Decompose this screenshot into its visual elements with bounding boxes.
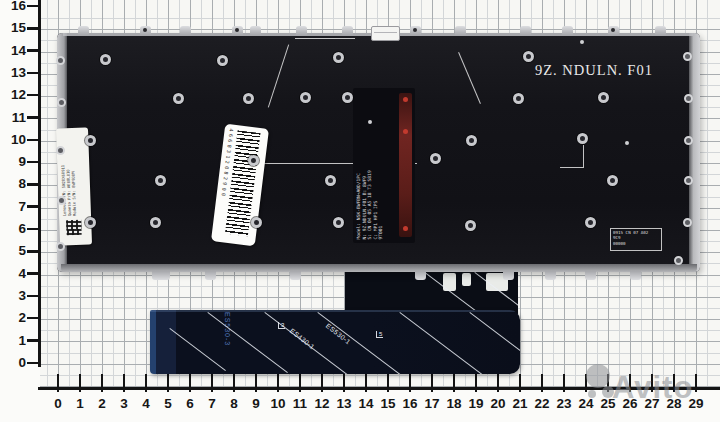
ruler-tick (27, 49, 41, 52)
screw-hole (85, 135, 96, 146)
ruler-tick (167, 374, 169, 392)
solder-pad (403, 226, 408, 231)
ruler-number: 14 (355, 396, 377, 411)
screw-hole (251, 217, 262, 228)
mounting-tab-with-hole (140, 26, 151, 35)
ruler-number: 3 (113, 396, 135, 411)
ruler-number: 15 (0, 20, 26, 35)
ruler-number: 0 (47, 396, 69, 411)
fold-line (169, 328, 226, 371)
ruler-tick (519, 374, 521, 392)
screw-hole (333, 52, 344, 63)
watermark-text: Avito (612, 370, 693, 406)
ruler-tick (387, 374, 389, 392)
ruler-tick (27, 161, 41, 164)
copper-backlight-strip (399, 93, 412, 237)
ruler-number: 0 (0, 355, 26, 370)
ruler-number: 10 (0, 132, 26, 147)
screw-hole (465, 220, 476, 231)
ruler-number: 11 (289, 396, 311, 411)
ruler-number: 6 (179, 396, 201, 411)
flex-printed-label: Model: NSK-BWFBN+A0D/1PC N: 9Z.NDULN.F01… (356, 95, 390, 240)
ruler-number: 19 (465, 396, 487, 411)
watermark-logo-circle (588, 390, 596, 398)
ruler-tick (211, 374, 213, 392)
screw-hole (333, 217, 344, 228)
ruler-tick (299, 374, 301, 392)
screw-hole (150, 217, 161, 228)
mounting-tab (455, 26, 466, 35)
mounting-tab (545, 271, 556, 280)
ruler-tick (27, 317, 41, 320)
ruler-tick (79, 374, 81, 392)
solder-pad (403, 97, 408, 102)
ruler-tick (343, 374, 345, 392)
ruler-number: 8 (223, 396, 245, 411)
rivet (56, 146, 65, 155)
ruler-tick (27, 72, 41, 75)
ruler-number: 9 (245, 396, 267, 411)
screw-hole (217, 55, 228, 66)
mounting-tab (205, 271, 216, 280)
flex-connector (371, 26, 400, 41)
mounting-tab (415, 271, 426, 280)
ribbon-fold-mark: 5 (376, 331, 383, 338)
mounting-tab (585, 271, 596, 280)
fold-line (317, 312, 401, 374)
barcode-sticker: 4668312082900 (211, 124, 269, 246)
ruler-tick (27, 183, 41, 186)
ruler-tick (321, 374, 323, 392)
ruler-tick (365, 374, 367, 392)
ruler-tick (27, 250, 41, 253)
screw-hole (325, 175, 336, 186)
flex-label-line: 9T001 (378, 95, 384, 240)
rivet (683, 52, 692, 61)
small-hole (625, 141, 629, 145)
watermark-logo-circle (586, 364, 610, 388)
screw-hole (342, 92, 353, 103)
ruler-number: 4 (0, 266, 26, 281)
ruler-number: 2 (0, 310, 26, 325)
etch-line (583, 145, 584, 167)
screw-hole (100, 54, 111, 65)
ruler-number: 10 (267, 396, 289, 411)
date-code-label: 0915 CN 07 A02 9C9 00000 (610, 228, 662, 251)
ruler-tick (123, 374, 125, 392)
ruler-tick (27, 272, 41, 275)
ruler-tick (475, 374, 477, 392)
ruler-tick (27, 205, 41, 208)
ruler-tick (145, 374, 147, 392)
ruler-tick (255, 374, 257, 392)
ribbon-cable-neck (345, 270, 518, 314)
mounting-tab (520, 26, 531, 35)
qr-code (66, 220, 82, 236)
cable-cutout (462, 273, 471, 286)
ruler-tick (101, 374, 103, 392)
ruler-number: 23 (553, 396, 575, 411)
solder-pad (403, 129, 408, 134)
etch-line (458, 52, 481, 104)
ruler-number: 8 (0, 176, 26, 191)
rivet (684, 136, 693, 145)
ruler-number: 5 (0, 243, 26, 258)
mounting-tab-with-hole (608, 26, 619, 35)
ruler-number: 13 (333, 396, 355, 411)
screw-hole (577, 133, 588, 144)
ruler-tick (541, 374, 543, 392)
ruler-number: 1 (0, 333, 26, 348)
rivet (57, 196, 66, 205)
mounting-tab (342, 26, 353, 35)
ruler-number: 21 (509, 396, 531, 411)
ruler-number: 16 (399, 396, 421, 411)
ruler-tick (409, 374, 411, 392)
ruler-number: 12 (0, 87, 26, 102)
fold-line (469, 312, 520, 374)
rivet (684, 176, 693, 185)
screw-hole (243, 93, 254, 104)
screw-hole (513, 93, 524, 104)
ruler-number: 7 (201, 396, 223, 411)
rivet (56, 242, 65, 251)
ruler-tick (189, 374, 191, 392)
ruler-number: 15 (377, 396, 399, 411)
keyboard-backplate: 9Z. NDULN. F01 Model: NSK-BWFBN+A0D/1PC … (57, 33, 700, 272)
mounting-tab (562, 26, 573, 35)
ruler-number: 17 (421, 396, 443, 411)
etch-line (560, 167, 584, 168)
ruler-tick (563, 374, 565, 392)
rivet (56, 56, 65, 65)
ruler-tick (27, 5, 41, 8)
label-line: 00000 (613, 241, 659, 246)
screw-hole (466, 135, 477, 146)
ruler-tick (57, 374, 59, 392)
ribbon-cable: ES530-3 ES430-1 ES530-1 3 5 (150, 310, 520, 374)
mounting-tab (180, 26, 191, 35)
rivet (683, 218, 692, 227)
ruler-number: 16 (0, 0, 26, 13)
screw-hole (430, 153, 441, 164)
small-hole (580, 40, 584, 44)
screw-hole (300, 92, 311, 103)
ruler-number: 3 (0, 288, 26, 303)
etch-line (268, 44, 289, 107)
ruler-tick (233, 374, 235, 392)
screw-hole (85, 217, 96, 228)
ruler-tick (453, 374, 455, 392)
screw-hole (155, 175, 166, 186)
ruler-number: 5 (157, 396, 179, 411)
ruler-number: 14 (0, 43, 26, 58)
ruler-tick (27, 27, 41, 30)
ruler-tick (27, 339, 41, 342)
rivet (57, 98, 66, 107)
ruler-number: 20 (487, 396, 509, 411)
mounting-tab (655, 26, 666, 35)
model-code-text: 9Z. NDULN. F01 (535, 62, 705, 79)
mounting-tab (152, 271, 170, 280)
etch-line (295, 38, 355, 39)
ruler-tick (497, 374, 499, 392)
fold-line (399, 312, 483, 374)
mounting-tab-with-hole (410, 26, 421, 35)
small-hole (368, 120, 372, 124)
ruler-number: 6 (0, 221, 26, 236)
product-photo: 161514131211109876543210 012345678910111… (0, 0, 720, 422)
mounting-tab-with-hole (232, 26, 243, 35)
ruler-tick (431, 374, 433, 392)
rivet (674, 256, 683, 265)
ruler-number: 9 (0, 154, 26, 169)
ruler-number: 11 (0, 110, 26, 125)
screw-hole (173, 93, 184, 104)
ruler-number: 18 (443, 396, 465, 411)
ruler-number: 1 (69, 396, 91, 411)
mounting-tab (250, 26, 261, 35)
ruler-number: 7 (0, 199, 26, 214)
watermark: Avito (586, 362, 720, 414)
ruler-number: 12 (311, 396, 333, 411)
ruler-tick (277, 374, 279, 392)
screw-hole (598, 92, 609, 103)
ruler-tick (27, 295, 41, 298)
mounting-tab (503, 271, 514, 280)
ruler-tick (27, 362, 41, 365)
mounting-tab (290, 271, 301, 280)
mounting-tab (78, 26, 89, 35)
ruler-tick (27, 139, 41, 142)
screw-hole (585, 217, 596, 228)
ruler-number: 22 (531, 396, 553, 411)
screw-hole (607, 175, 618, 186)
ruler-tick (27, 228, 41, 231)
screw-hole (248, 155, 259, 166)
ruler-number: 4 (135, 396, 157, 411)
screw-hole (523, 51, 534, 62)
ruler-tick (27, 94, 41, 97)
ruler-number: 13 (0, 65, 26, 80)
mounting-tab (296, 26, 307, 35)
mounting-tab (630, 271, 641, 280)
rivet (684, 94, 693, 103)
ruler-tick (27, 116, 41, 119)
ruler-number: 2 (91, 396, 113, 411)
